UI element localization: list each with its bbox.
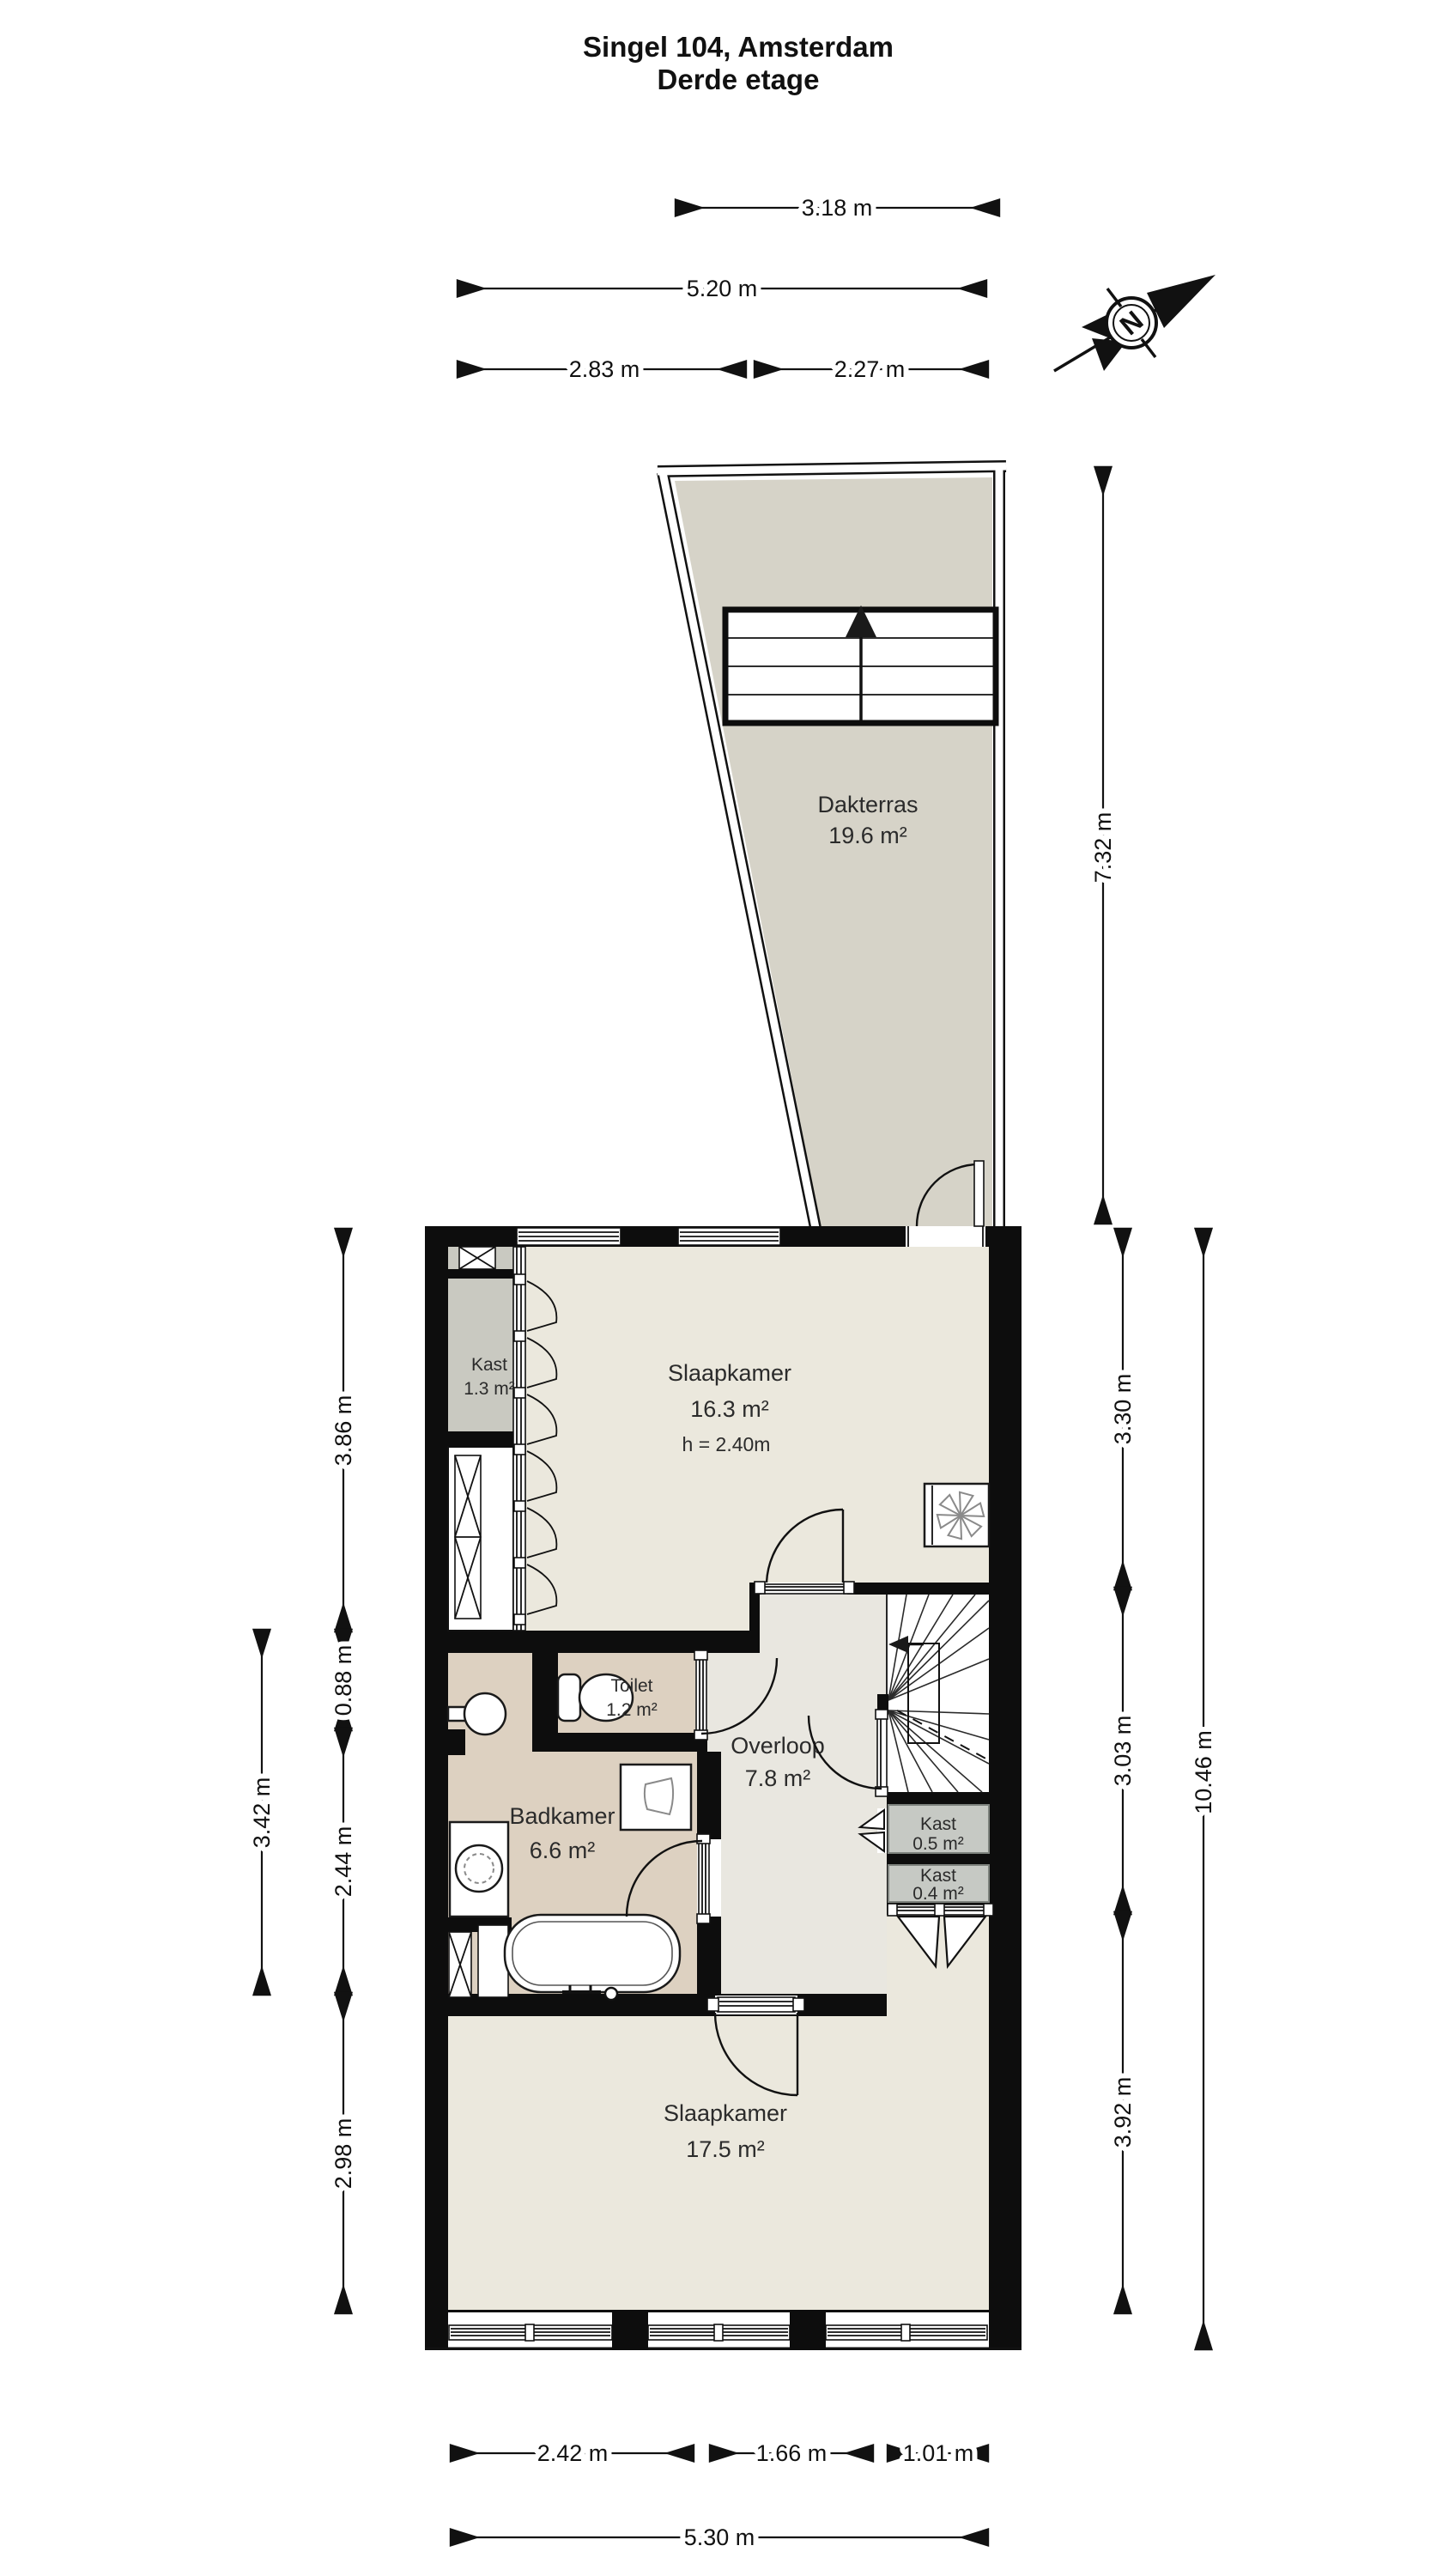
dim-label: 3.18 m [802, 195, 873, 221]
floorplan-drawing: Singel 104, Amsterdam Derde etage [0, 0, 1449, 2576]
overloop-name: Overloop [731, 1733, 825, 1759]
dim-label: 3.42 m [249, 1777, 275, 1849]
dimension-right-slaapkamer-onder: 3.92 m [1110, 1913, 1136, 2312]
shower-icon [621, 1765, 691, 1830]
title-floor: Derde etage [658, 64, 820, 95]
title-address: Singel 104, Amsterdam [583, 31, 894, 63]
kast-05-labels: Kast 0.5 m² [912, 1814, 964, 1854]
wall-stub [448, 1729, 465, 1755]
terrace-stairs-icon [725, 605, 996, 723]
dimension-right-slaapkamer-boven: 3.30 m [1110, 1230, 1136, 1589]
dim-label: 3.30 m [1110, 1374, 1136, 1445]
bathtub-icon [505, 1915, 680, 2000]
dakterras-area: Dakterras 19.6 m² [658, 466, 1006, 1228]
window-pier [612, 2310, 648, 2350]
window-icon [826, 2324, 987, 2341]
dimension-top-links: 2.83 m [458, 356, 745, 382]
dimension-right-totaal: 10.46 m [1191, 1230, 1216, 2348]
dimension-bottom-totaal: 5.30 m [452, 2524, 987, 2550]
kast-05-name: Kast [920, 1814, 956, 1834]
dimension-left-slaapkamer-onder: 2.98 m [330, 1994, 356, 2312]
flue-icon [449, 1932, 471, 1997]
ventilation-fan-icon [925, 1484, 989, 1546]
room-overloop [707, 1595, 887, 1994]
dimension-left-badkamer-totaal: 3.42 m [249, 1631, 275, 1994]
overloop-area: 7.8 m² [745, 1765, 811, 1791]
dimension-top-rechts: 2.27 m [755, 356, 987, 382]
dim-label: 3.86 m [330, 1395, 356, 1467]
flue-icon [455, 1455, 481, 1619]
dimension-bottom-midden: 1.66 m [711, 2440, 872, 2466]
kast-04-labels: Kast 0.4 m² [912, 1866, 964, 1904]
window-icon [678, 1228, 780, 1245]
dimension-bottom-rechts: 1.01 m [888, 2440, 987, 2466]
dimension-left-badkamer: 2.44 m [330, 1729, 356, 1994]
badkamer-name: Badkamer [509, 1803, 615, 1829]
dakterras-area-label: 19.6 m² [828, 823, 907, 848]
dim-label: 2.44 m [330, 1826, 356, 1898]
washing-machine-icon [450, 1822, 508, 1917]
dim-label: 2.83 m [569, 356, 640, 382]
kast-04-area: 0.4 m² [912, 1884, 964, 1904]
compass-north-icon: N [1054, 275, 1216, 371]
dim-label: 0.88 m [330, 1645, 356, 1716]
kast-boven-area: 1.3 m² [464, 1379, 515, 1399]
toilet-area: 1.2 m² [606, 1700, 658, 1720]
dim-label: 2.98 m [330, 2118, 356, 2190]
window-pier [790, 2310, 826, 2350]
dim-label: 1.66 m [756, 2440, 828, 2466]
slaapkamer-onder-name: Slaapkamer [664, 2100, 787, 2126]
dimension-left-toilet: 0.88 m [330, 1631, 356, 1729]
kast-05-area: 0.5 m² [912, 1834, 964, 1854]
door-leaf [974, 1161, 984, 1226]
slaapkamer-onder-area: 17.5 m² [686, 2136, 765, 2162]
plan-title: Singel 104, Amsterdam Derde etage [583, 31, 894, 95]
dim-label: 2.27 m [834, 356, 906, 382]
dim-label: 5.20 m [687, 276, 758, 301]
bottom-wall-windows [425, 2310, 1022, 2350]
kast-04-name: Kast [920, 1866, 956, 1886]
dimension-bottom-links: 2.42 m [452, 2440, 693, 2466]
slaapkamer-boven-height: h = 2.40m [682, 1433, 771, 1455]
window-icon [517, 1228, 621, 1245]
slaapkamer-boven-name: Slaapkamer [668, 1360, 791, 1386]
window-icon [449, 2324, 612, 2341]
dim-label: 7.32 m [1090, 812, 1116, 884]
dimension-right-terras: 7.32 m [1090, 468, 1116, 1223]
dim-label: 2.42 m [537, 2440, 609, 2466]
dakterras-floor [675, 477, 992, 1226]
dim-label: 10.46 m [1191, 1730, 1216, 1814]
dim-label: 3.03 m [1110, 1716, 1136, 1787]
cupboard [478, 1925, 508, 1997]
dim-label: 3.92 m [1110, 2077, 1136, 2148]
floorplan-page: Singel 104, Amsterdam Derde etage [0, 0, 1449, 2576]
badkamer-area: 6.6 m² [530, 1838, 596, 1863]
dimension-top-totaal: 5.20 m [458, 276, 985, 301]
dimension-left-kast: 3.86 m [330, 1230, 356, 1631]
kast-boven-name: Kast [471, 1355, 507, 1375]
toilet-name: Toilet [610, 1676, 652, 1696]
dim-label: 5.30 m [684, 2524, 755, 2550]
window-icon [648, 2324, 790, 2341]
slaapkamer-boven-area: 16.3 m² [690, 1396, 769, 1422]
dim-label: 1.01 m [903, 2440, 974, 2466]
dimension-top-terras: 3.18 m [676, 195, 998, 221]
dakterras-name: Dakterras [817, 792, 918, 817]
dimension-right-midden: 3.03 m [1110, 1589, 1136, 1913]
